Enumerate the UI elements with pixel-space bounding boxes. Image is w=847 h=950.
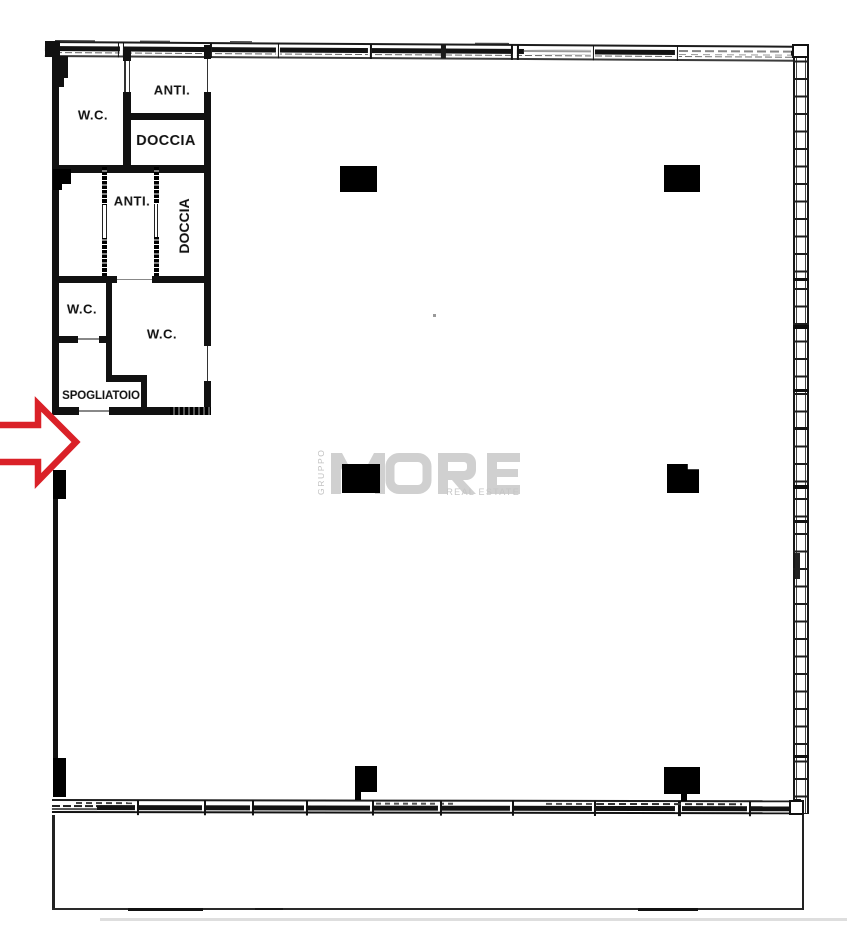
svg-text:REAL ESTATE: REAL ESTATE [446, 487, 520, 497]
svg-text:GRUPPO: GRUPPO [316, 449, 326, 495]
